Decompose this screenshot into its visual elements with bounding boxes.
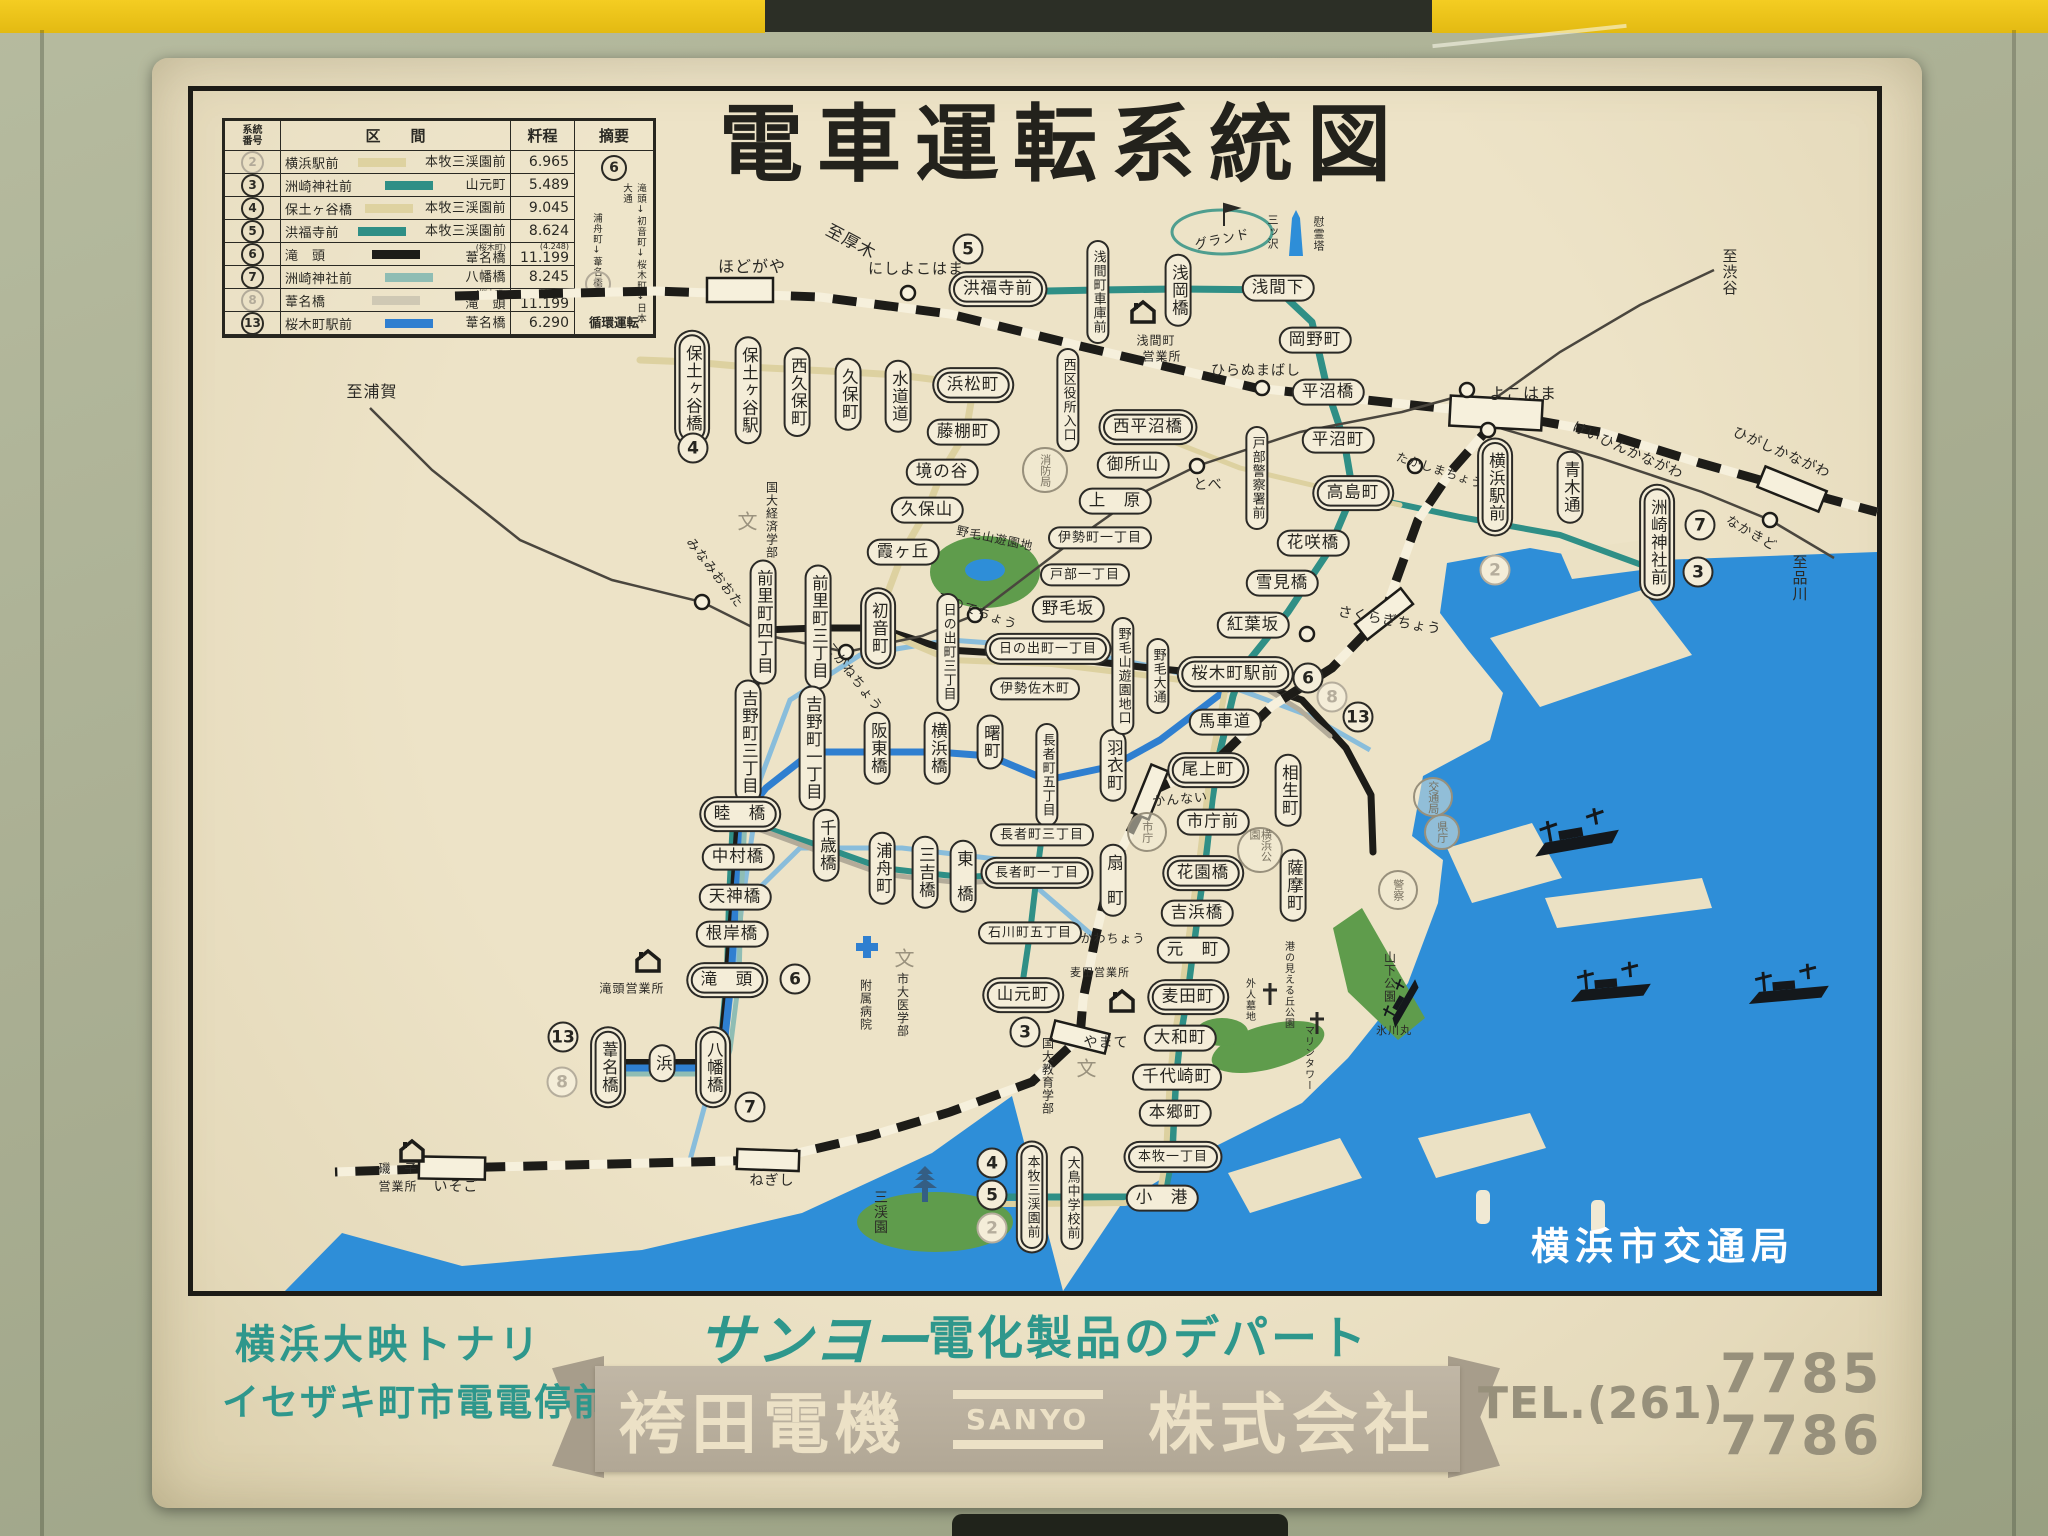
station-label: 中村橋 (702, 844, 775, 871)
station-label: 長者町五丁目 (1035, 723, 1058, 827)
route-number-badge: 13 (548, 1022, 579, 1053)
railway-stop (1300, 627, 1314, 641)
route-number-badge: 6 (780, 964, 811, 995)
station-label: 吉野町一丁目 (799, 686, 826, 811)
station-label: 曙町 (977, 715, 1004, 770)
station-label: 根岸橋 (696, 921, 769, 948)
map-text-label: 国大経済学部 (764, 481, 781, 559)
station-label: 高島町 (1317, 480, 1390, 507)
cross-icon (1263, 983, 1277, 1005)
station-label: 阪東橋 (864, 712, 891, 785)
station-label: 霞ヶ丘 (867, 539, 940, 566)
ad-brand-tagline: 電化製品のデパート (928, 1302, 1369, 1368)
station-label: 本牧一丁目 (1128, 1145, 1218, 1168)
station-label: 浅岡橋 (1165, 254, 1192, 327)
station-label: 水道道 (885, 360, 912, 433)
map-text-label: 港の見える丘公園 (1281, 941, 1296, 1029)
pond (965, 559, 1005, 581)
map-text-label: 外人墓地 (1242, 978, 1257, 1022)
station-label: 野毛大通 (1146, 638, 1169, 714)
route-number-badge: 4 (977, 1148, 1008, 1179)
station-label: 薩摩町 (1280, 849, 1307, 922)
map-text-label: マリンタワー (1301, 1025, 1316, 1091)
railway-stop (1763, 513, 1777, 527)
station-label: 西久保町 (784, 347, 811, 437)
map-text-label: 文 (1077, 1053, 1098, 1082)
railway-stop (1190, 459, 1204, 473)
facility-circle: 県庁 (1424, 814, 1460, 850)
route-number-badge: 5 (977, 1180, 1008, 1211)
station-label: 小 港 (1126, 1185, 1199, 1212)
station-label: 桜木町駅前 (1181, 661, 1289, 688)
station-label: 紅葉坂 (1217, 612, 1290, 639)
map-text-label: 麦田営業所 (1070, 964, 1130, 980)
logo-bar-bottom (953, 1440, 1103, 1449)
flag-icon (1224, 204, 1238, 226)
route-number-badge: 4 (678, 433, 709, 464)
facility-circle: 消防局 (1022, 447, 1068, 493)
map-text-label: 市大医学部 (895, 973, 912, 1038)
station-label: 保土ヶ谷駅 (735, 336, 762, 444)
station-label: 三吉橋 (912, 836, 939, 909)
obelisk-icon (1289, 210, 1303, 256)
railway-stop (695, 595, 709, 609)
map-text-label: 国大教育学部 (1040, 1037, 1057, 1115)
station-label: 花園橋 (1167, 860, 1240, 887)
station-label: 横浜橋 (924, 712, 951, 785)
station-label: 元 町 (1157, 937, 1230, 964)
house-icon (1111, 991, 1133, 1011)
tel-number-1: 7785 (1720, 1342, 1882, 1405)
map-text-label: 慰霊塔 (1310, 216, 1326, 252)
map-text-label: 至品川 (1790, 554, 1811, 602)
map-text-label: ほどがや (718, 253, 786, 277)
station-label: 平沼町 (1302, 427, 1375, 454)
map-text-label: よこはま (1489, 380, 1557, 404)
station-label: 御所山 (1097, 452, 1170, 479)
map-text-label: 至浦賀 (346, 378, 397, 402)
station-label: 羽衣町 (1100, 729, 1127, 802)
station-label: 浦舟町 (869, 832, 896, 905)
map-text-label: とべ (1193, 474, 1222, 494)
station-label: 野毛坂 (1032, 596, 1105, 623)
station-label: 長者町三丁目 (990, 823, 1094, 846)
station-label: 戸部警察署前 (1245, 426, 1268, 530)
map-text-label: 文 (738, 506, 759, 535)
station-label: 岡野町 (1279, 327, 1352, 354)
station-label: 相生町 (1275, 754, 1302, 827)
ad-shop-location-line1: 横浜大映トナリ (235, 1312, 543, 1370)
station-label: 初音町 (865, 592, 892, 665)
station-label: 馬車道 (1189, 709, 1262, 736)
station-label: 尾上町 (1172, 757, 1245, 784)
bollard-icon (1476, 1190, 1490, 1224)
station-label: 前里町四丁目 (750, 560, 777, 685)
station-label: 平沼橋 (1292, 379, 1365, 406)
facility-circle: 交通局 (1413, 777, 1453, 817)
station-label: 日の出町三丁目 (936, 593, 959, 711)
station-label: 市庁前 (1177, 809, 1250, 836)
route-number-badge: 2 (1480, 555, 1511, 586)
station-label: 大和町 (1144, 1025, 1217, 1052)
map-text-label: 至渋谷 (1720, 248, 1741, 296)
station-label: 伊勢町一丁目 (1048, 526, 1152, 549)
logo-word: SANYO (966, 1403, 1089, 1436)
station-label: 千歳橋 (813, 809, 840, 882)
map-text-label: 浅間町 (1136, 332, 1175, 349)
station-label: 日の出町一丁目 (989, 637, 1107, 660)
station-label: 浜 (649, 1044, 676, 1082)
station-label: 戸部一丁目 (1040, 563, 1130, 586)
route-number-badge: 8 (1317, 682, 1348, 713)
map-text-label: やまて (1084, 1032, 1129, 1052)
station-label: 八幡橋 (700, 1031, 727, 1104)
station-label: 山元町 (987, 982, 1060, 1009)
route-number-badge: 13 (1343, 702, 1374, 733)
railway-station (707, 278, 773, 302)
map-text-label: 山下公園 (1382, 951, 1399, 1003)
station-label: 吉野町三丁目 (735, 680, 762, 805)
ad-company-name-left: 袴田電機 (619, 1371, 907, 1467)
map-text-label: 氷川丸 (1376, 1022, 1412, 1038)
station-label: 扇 町 (1100, 844, 1127, 917)
map-text-label: 附属病院 (858, 979, 875, 1031)
station-label: 上 原 (1079, 488, 1152, 515)
station-label: 浅間町車庫前 (1086, 240, 1109, 344)
route-number-badge: 7 (735, 1092, 766, 1123)
station-label: 西区役所入口 (1056, 348, 1079, 452)
station-label: 東 橋 (950, 840, 977, 913)
station-label: 吉浜橋 (1161, 900, 1234, 927)
route-number-badge: 3 (1010, 1017, 1041, 1048)
railway-station (737, 1149, 800, 1171)
ad-company-name-right: 株式会社 (1148, 1371, 1436, 1467)
facility-circle: 市庁 (1127, 812, 1167, 852)
station-label: 花咲橋 (1277, 530, 1350, 557)
map-text-label: にしよこはま (868, 258, 964, 279)
station-label: 久保町 (835, 358, 862, 431)
station-label: 浅間下 (1242, 275, 1315, 302)
house-icon (1132, 302, 1154, 322)
map-text-label: 三渓園 (870, 1190, 890, 1235)
station-label: 洪福寺前 (953, 276, 1043, 303)
map-text-label: ねぎし (750, 1170, 795, 1190)
station-label: 伊勢佐木町 (990, 677, 1080, 700)
route-number-badge: 7 (1685, 510, 1716, 541)
station-label: 睦 橋 (704, 801, 777, 828)
railway-stop (1255, 381, 1269, 395)
tel-label: TEL.(261) (1478, 1378, 1724, 1429)
facility-circle: 警察 (1378, 870, 1418, 910)
station-label: 藤棚町 (927, 419, 1000, 446)
station-label: 本牧三渓園前 (1020, 1145, 1043, 1249)
station-label: 野毛山遊園地口 (1111, 617, 1134, 735)
map-text-label: 文 (895, 943, 916, 972)
route-number-badge: 3 (1683, 557, 1714, 588)
map-text-label: 営業所 (378, 1178, 417, 1195)
sanyo-logo: SANYO (953, 1390, 1103, 1449)
station-label: 保土ヶ谷橋 (679, 334, 706, 442)
map-text-label: ひらぬまばし (1211, 360, 1301, 380)
station-label: 滝 頭 (691, 967, 764, 994)
station-label: 青木通 (1557, 451, 1584, 524)
route-number-badge: 2 (977, 1213, 1008, 1244)
station-label: 千代崎町 (1132, 1064, 1222, 1091)
tel-number-2: 7786 (1720, 1404, 1882, 1467)
house-icon (637, 951, 659, 971)
station-label: 石川町五丁目 (978, 921, 1082, 944)
station-label: 浜松町 (937, 372, 1010, 399)
map-text-label: 磯 子 (378, 1160, 417, 1177)
ad-company-ribbon: 袴田電機 SANYO 株式会社 (595, 1366, 1460, 1472)
station-label: 麦田町 (1152, 984, 1225, 1011)
park (1333, 908, 1425, 1040)
station-label: 洲崎神社前 (1644, 488, 1671, 596)
map-text-label: 滝頭営業所 (599, 980, 664, 997)
route-number-badge: 8 (547, 1067, 578, 1098)
railway-stop (1460, 383, 1474, 397)
station-label: 久保山 (891, 497, 964, 524)
house-icon (401, 1141, 423, 1161)
station-label: 長者町一丁目 (985, 861, 1089, 884)
facility-circle: 横浜公園 (1237, 827, 1283, 873)
station-label: 天神橋 (699, 884, 772, 911)
station-label: 境の谷 (906, 459, 979, 486)
station-label: 本郷町 (1139, 1100, 1212, 1127)
map-text-label: 三ッ沢 (1264, 214, 1280, 250)
station-label: 雪見橋 (1246, 570, 1319, 597)
station-label: 前里町三丁目 (805, 565, 832, 690)
railway-stop (1481, 423, 1495, 437)
station-label: 西平沼橋 (1103, 414, 1193, 441)
station-label: 葦名橋 (595, 1031, 622, 1104)
hospital-icon (856, 936, 878, 958)
route-number-badge: 5 (953, 234, 984, 265)
map-text-label: いそご (434, 1176, 479, 1196)
station-label: 大鳥中学校前 (1060, 1146, 1083, 1250)
logo-bar-top (953, 1390, 1103, 1399)
photo-of-framed-sign: 電車運転系統図 系統番号 区 間 粁程 摘要 2横浜駅前本牧三渓園前6.9653… (0, 0, 2048, 1536)
railway-stop (901, 286, 915, 300)
station-label: 横浜駅前 (1482, 442, 1509, 532)
map-text-label: 営業所 (1142, 348, 1181, 365)
ad-brand-name: サンヨー (698, 1296, 930, 1377)
publisher-name: 横浜市交通局 (1531, 1216, 1795, 1271)
ad-shop-location-line2: イセザキ町市電電停前 (222, 1372, 612, 1426)
